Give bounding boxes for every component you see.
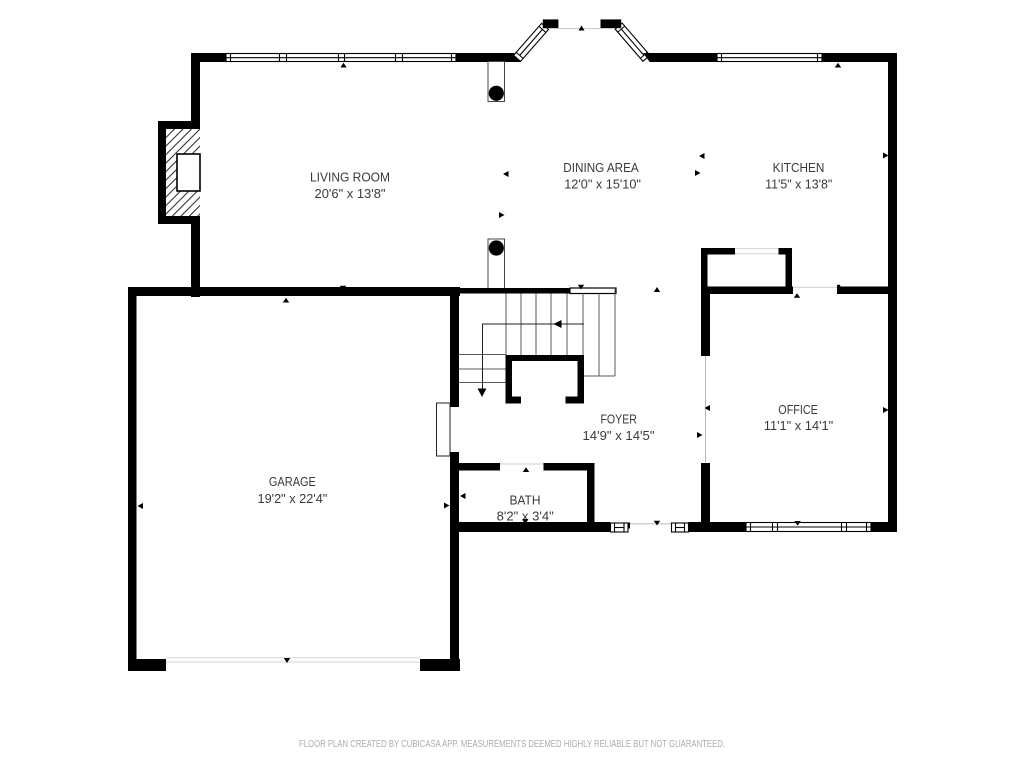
svg-text:19'2" x 22'4": 19'2" x 22'4" <box>258 492 328 506</box>
svg-text:12'0" x 15'10": 12'0" x 15'10" <box>564 178 641 192</box>
svg-text:LIVING ROOM: LIVING ROOM <box>310 170 390 184</box>
svg-text:20'6" x 13'8": 20'6" x 13'8" <box>315 187 386 201</box>
svg-text:FLOOR PLAN CREATED BY CUBICASA: FLOOR PLAN CREATED BY CUBICASA APP. MEAS… <box>299 739 725 750</box>
svg-text:DINING AREA: DINING AREA <box>563 161 639 175</box>
svg-text:11'5" x 13'8": 11'5" x 13'8" <box>765 178 832 192</box>
svg-text:BATH: BATH <box>509 493 540 507</box>
svg-text:11'1" x 14'1": 11'1" x 14'1" <box>764 419 834 433</box>
svg-text:GARAGE: GARAGE <box>269 475 316 489</box>
svg-text:14'9" x 14'5": 14'9" x 14'5" <box>583 429 655 443</box>
svg-text:FOYER: FOYER <box>600 413 637 427</box>
svg-text:OFFICE: OFFICE <box>778 403 818 417</box>
svg-text:KITCHEN: KITCHEN <box>773 161 825 175</box>
